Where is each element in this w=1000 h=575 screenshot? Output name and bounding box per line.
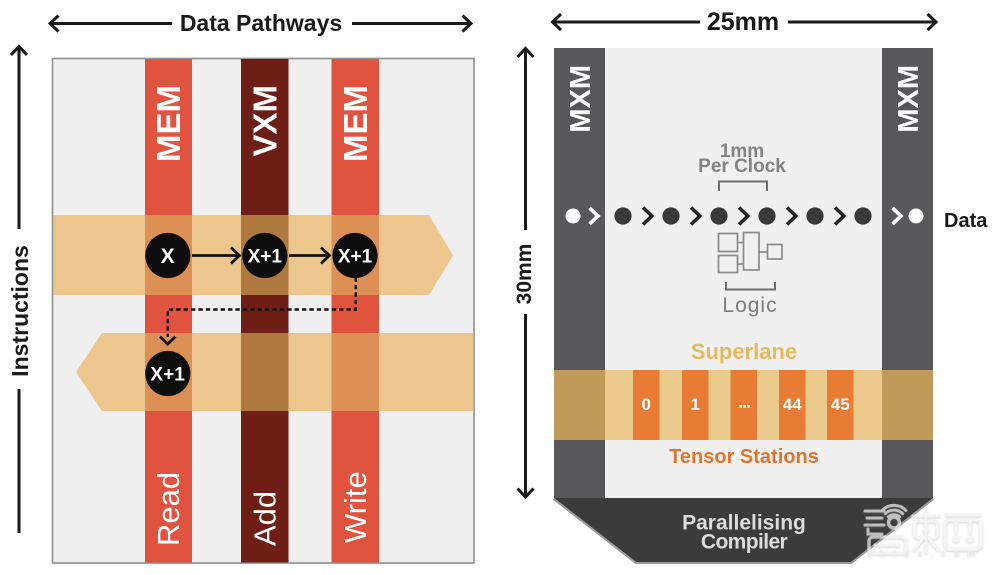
- svg-text:Instructions: Instructions: [7, 245, 33, 377]
- svg-text:MEM: MEM: [337, 85, 374, 162]
- svg-text:X+1: X+1: [338, 247, 373, 268]
- svg-text:Logic: Logic: [722, 294, 777, 317]
- svg-text:Compiler: Compiler: [701, 531, 788, 554]
- svg-text:MXM: MXM: [893, 65, 925, 133]
- svg-text:Tensor Stations: Tensor Stations: [669, 446, 819, 468]
- svg-text:X+1: X+1: [248, 247, 283, 268]
- svg-text:25mm: 25mm: [707, 8, 779, 36]
- svg-text:Read: Read: [151, 472, 186, 546]
- svg-text:45: 45: [831, 395, 850, 414]
- svg-text:MXM: MXM: [565, 65, 597, 133]
- svg-text:Write: Write: [338, 471, 373, 543]
- svg-text:Data: Data: [944, 210, 988, 232]
- svg-text:Data Pathways: Data Pathways: [180, 10, 342, 36]
- svg-text:Superlane: Superlane: [691, 339, 797, 364]
- svg-text:VXM: VXM: [247, 85, 284, 157]
- svg-text:0: 0: [641, 395, 650, 414]
- svg-text:Add: Add: [248, 491, 283, 546]
- svg-text:30mm: 30mm: [513, 244, 536, 305]
- svg-text:MEM: MEM: [150, 85, 187, 162]
- svg-text:Per Clock: Per Clock: [698, 156, 786, 177]
- svg-text:X+1: X+1: [150, 365, 185, 386]
- svg-text:44: 44: [783, 395, 802, 414]
- svg-text:X: X: [161, 245, 175, 268]
- svg-text:1: 1: [690, 395, 699, 414]
- svg-text:zhidx.com: zhidx.com: [867, 548, 984, 559]
